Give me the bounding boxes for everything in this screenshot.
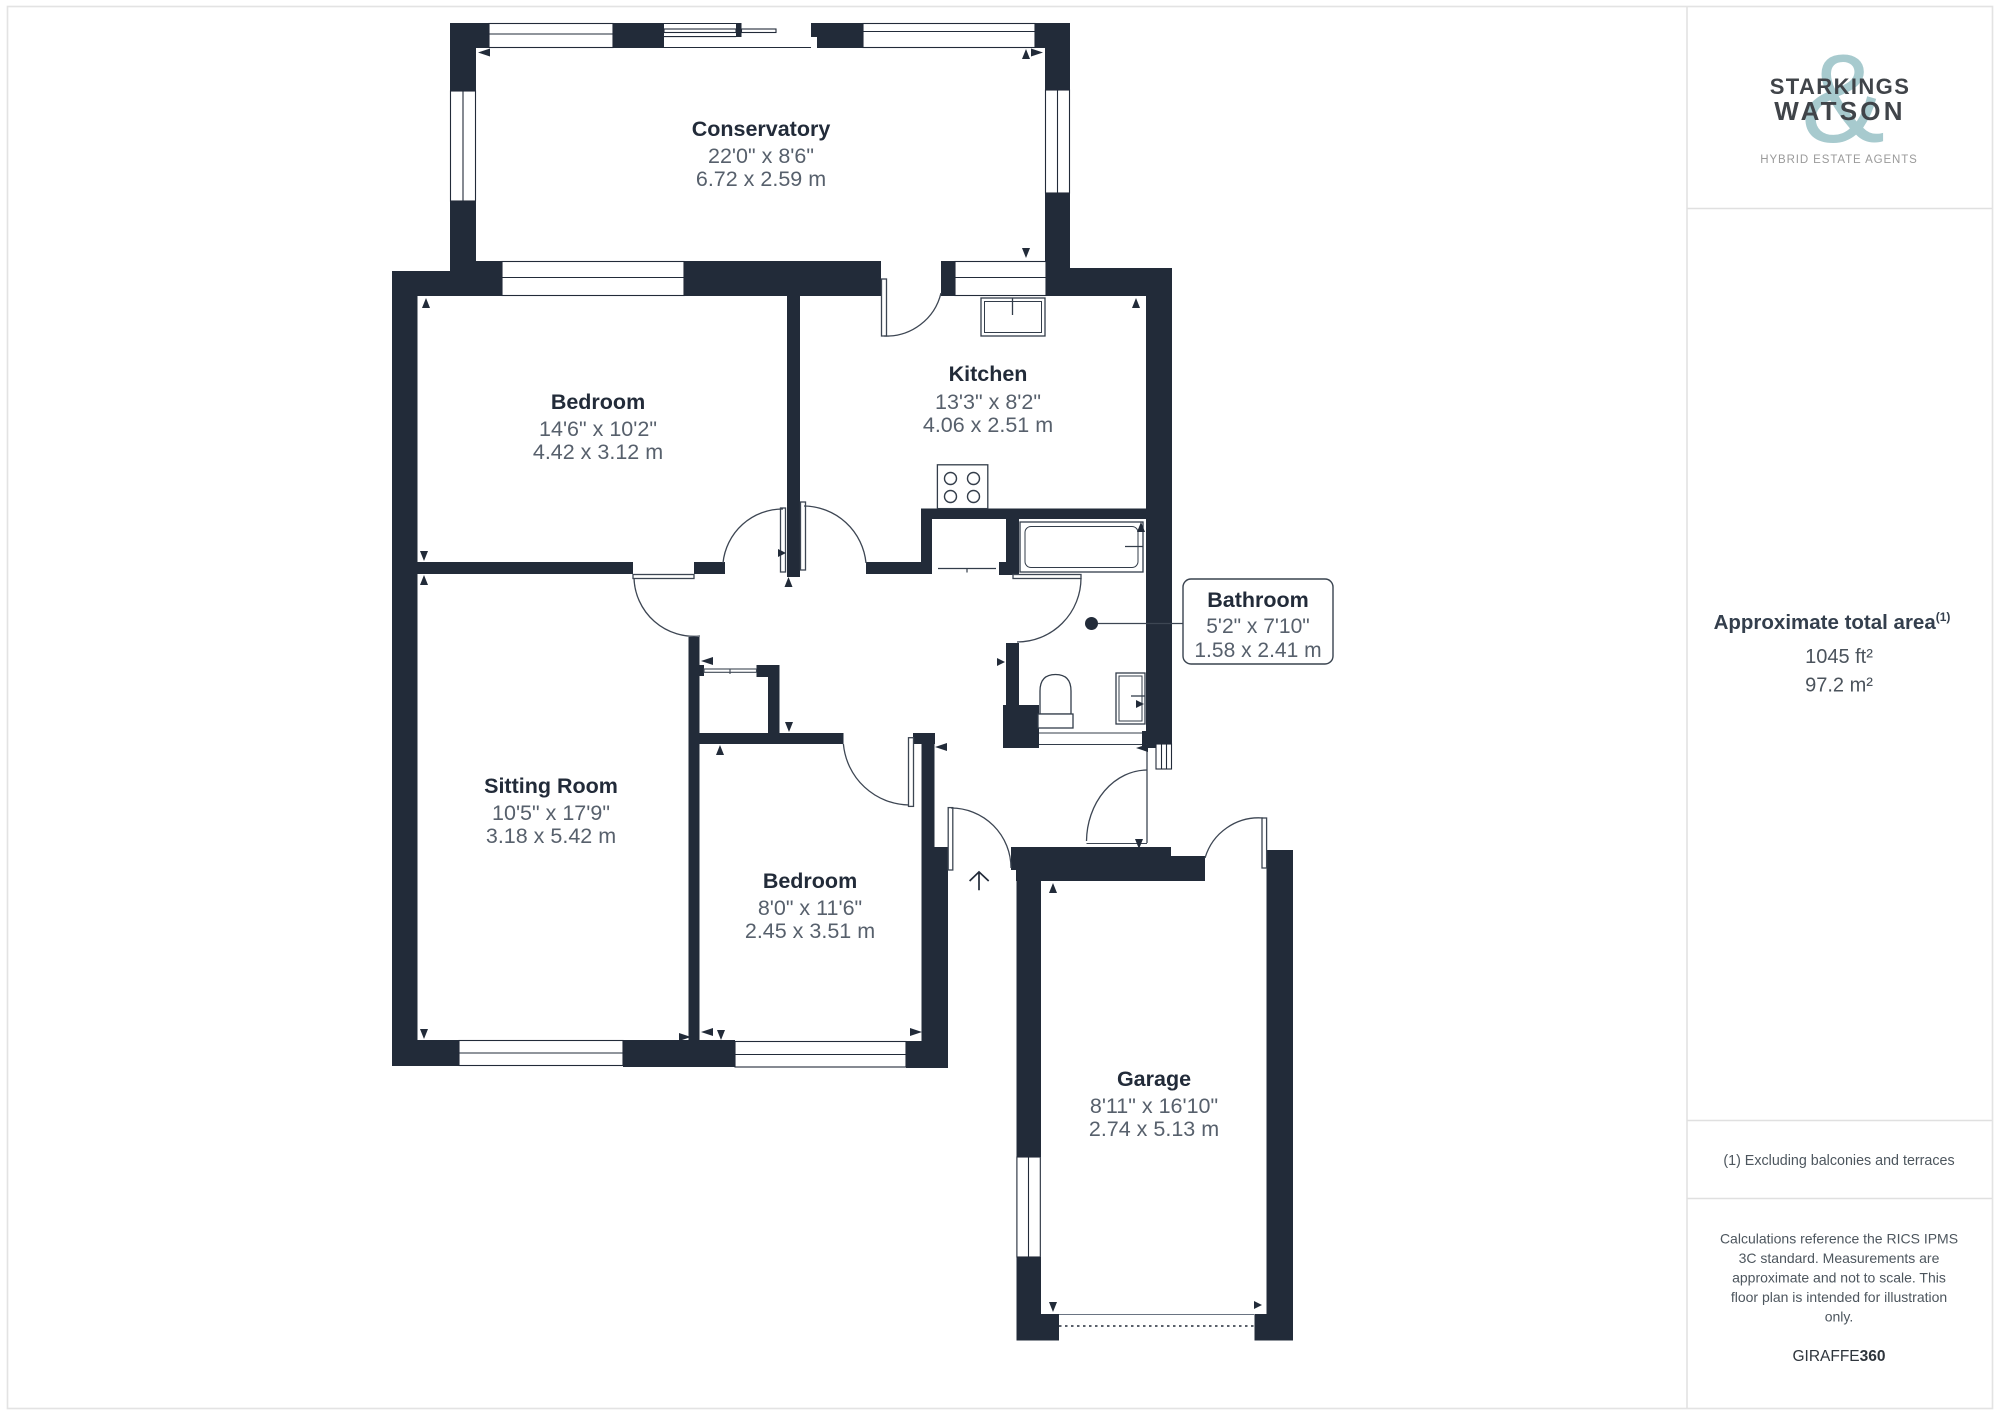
svg-text:approximate and not to scale.: approximate and not to scale. This xyxy=(1732,1270,1946,1286)
svg-text:(1) Excluding balconies and te: (1) Excluding balconies and terraces xyxy=(1723,1153,1954,1169)
svg-text:Conservatory: Conservatory xyxy=(692,117,831,141)
svg-text:2.74 x 5.13 m: 2.74 x 5.13 m xyxy=(1089,1117,1219,1141)
svg-text:4.06 x 2.51 m: 4.06 x 2.51 m xyxy=(923,413,1053,437)
svg-text:Kitchen: Kitchen xyxy=(949,362,1028,386)
svg-text:6.72 x 2.59 m: 6.72 x 2.59 m xyxy=(696,167,826,191)
svg-text:Bedroom: Bedroom xyxy=(551,390,645,414)
svg-text:only.: only. xyxy=(1825,1309,1854,1325)
svg-text:3.18 x 5.42 m: 3.18 x 5.42 m xyxy=(486,824,616,848)
svg-text:14'6" x 10'2": 14'6" x 10'2" xyxy=(539,417,657,441)
svg-text:floor plan is intended for ill: floor plan is intended for illustration xyxy=(1731,1289,1947,1305)
svg-text:3C standard. Measurements are: 3C standard. Measurements are xyxy=(1739,1250,1940,1266)
svg-text:Bedroom: Bedroom xyxy=(763,869,857,893)
svg-text:Sitting Room: Sitting Room xyxy=(484,774,618,798)
svg-text:4.42 x 3.12 m: 4.42 x 3.12 m xyxy=(533,440,663,464)
svg-text:HYBRID ESTATE AGENTS: HYBRID ESTATE AGENTS xyxy=(1760,154,1918,166)
svg-text:Bathroom: Bathroom xyxy=(1207,588,1309,612)
svg-text:5'2" x 7'10": 5'2" x 7'10" xyxy=(1206,615,1310,638)
svg-text:WATSON: WATSON xyxy=(1774,96,1905,126)
svg-text:1045 ft²: 1045 ft² xyxy=(1805,646,1873,668)
svg-text:GIRAFFE360: GIRAFFE360 xyxy=(1792,1348,1885,1365)
svg-text:22'0" x 8'6": 22'0" x 8'6" xyxy=(708,144,814,168)
svg-text:Garage: Garage xyxy=(1117,1067,1191,1091)
svg-text:Approximate total area(1): Approximate total area(1) xyxy=(1714,610,1951,634)
svg-text:8'0" x 11'6": 8'0" x 11'6" xyxy=(758,896,862,920)
svg-text:97.2 m²: 97.2 m² xyxy=(1805,675,1873,697)
svg-text:13'3" x 8'2": 13'3" x 8'2" xyxy=(935,390,1041,414)
svg-text:10'5" x 17'9": 10'5" x 17'9" xyxy=(492,801,610,825)
svg-text:1.58 x 2.41 m: 1.58 x 2.41 m xyxy=(1194,639,1321,662)
svg-text:2.45 x 3.51 m: 2.45 x 3.51 m xyxy=(745,919,875,943)
svg-text:8'11" x 16'10": 8'11" x 16'10" xyxy=(1090,1094,1218,1118)
svg-text:Calculations reference the RIC: Calculations reference the RICS IPMS xyxy=(1720,1231,1958,1247)
